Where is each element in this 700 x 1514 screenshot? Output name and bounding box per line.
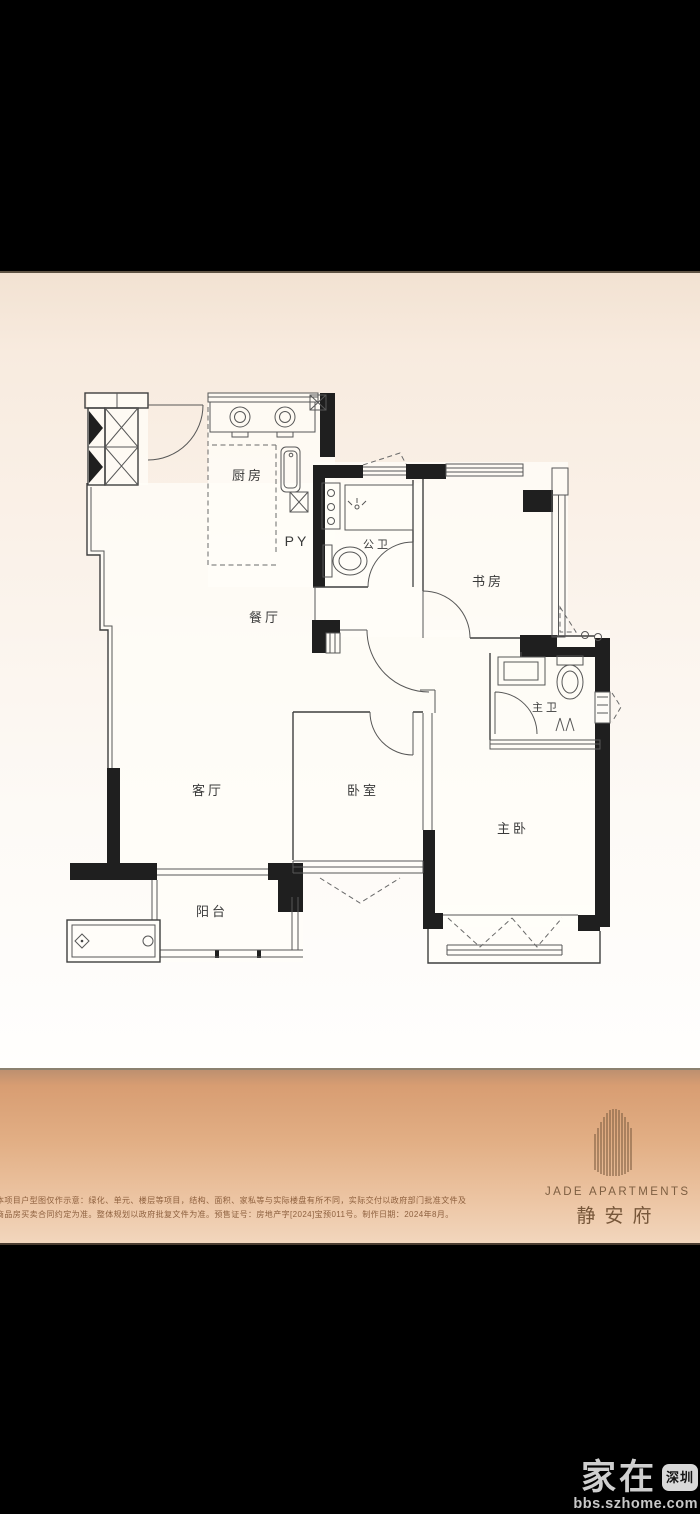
- room-label-kitchen: 厨房: [232, 468, 264, 483]
- site-watermark: 家在 深圳 bbs.szhome.com: [573, 1460, 698, 1512]
- phone-screenshot: 厨房 餐厅 客厅 阳台 卧室 主卧 书房 公卫 主卫 PY 本项目户型图仅作示意…: [0, 0, 700, 1514]
- room-label-bedroom: 卧室: [347, 783, 379, 798]
- room-label-dining: 餐厅: [249, 610, 281, 625]
- logo-chinese-name: 静安府: [545, 1201, 683, 1228]
- watermark-site-name: 家在: [581, 1460, 657, 1495]
- watermark-url: bbs.szhome.com: [573, 1496, 698, 1512]
- watermark-city-badge: 深圳: [662, 1464, 698, 1491]
- room-label-balcony: 阳台: [196, 904, 228, 919]
- pipe-shaft-label: PY: [285, 533, 310, 549]
- building-bars-icon: [593, 1108, 635, 1176]
- room-label-master-bedroom: 主卧: [497, 821, 529, 836]
- project-logo: JADE APARTMENTS 静安府: [545, 1108, 683, 1228]
- room-label-living: 客厅: [192, 783, 224, 798]
- room-label-master-bath: 主卫: [532, 701, 560, 714]
- room-label-guest-bath: 公卫: [363, 539, 391, 551]
- branding-band: 本项目户型图仅作示意：绿化、单元、楼层等项目，结构、面积、家私等与实际楼盘有所不…: [0, 1068, 700, 1243]
- logo-english-name: JADE APARTMENTS: [545, 1186, 683, 1198]
- disclaimer-line-2: 商品房买卖合同约定为准。整体规划以政府批复文件为准。预售证号：房地产字[2024…: [0, 1208, 476, 1222]
- top-letterbox-bar: [0, 0, 700, 271]
- bottom-letterbox-bar: 家在 深圳 bbs.szhome.com: [0, 1243, 700, 1514]
- floor-plan: 厨房 餐厅 客厅 阳台 卧室 主卧 书房 公卫 主卫 PY: [60, 385, 645, 985]
- disclaimer-line-1: 本项目户型图仅作示意：绿化、单元、楼层等项目，结构、面积、家私等与实际楼盘有所不…: [0, 1194, 476, 1208]
- room-label-study: 书房: [472, 574, 504, 589]
- disclaimer-text: 本项目户型图仅作示意：绿化、单元、楼层等项目，结构、面积、家私等与实际楼盘有所不…: [0, 1194, 476, 1221]
